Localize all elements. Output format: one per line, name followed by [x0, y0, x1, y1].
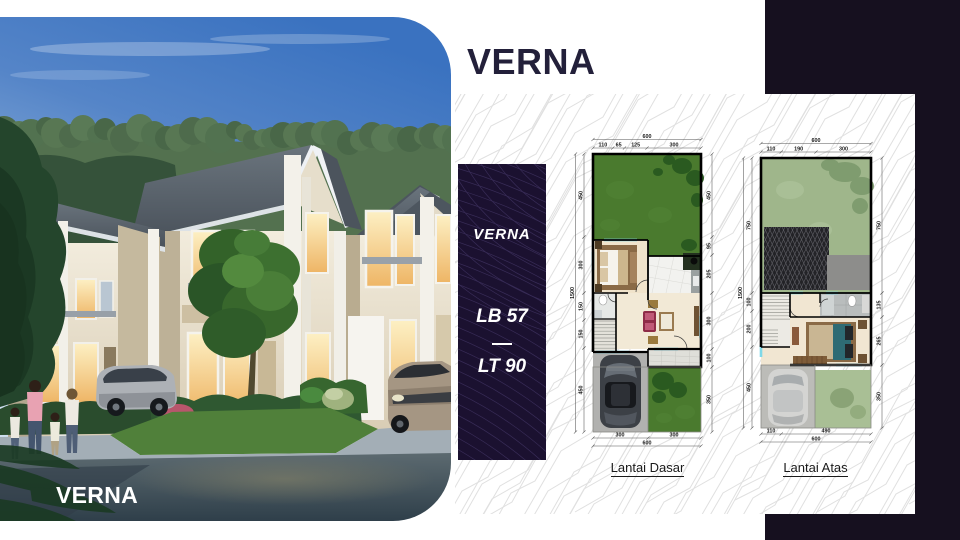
svg-text:450: 450 [579, 191, 585, 200]
svg-text:600: 600 [812, 437, 821, 443]
svg-text:265: 265 [877, 337, 883, 346]
svg-text:110: 110 [767, 429, 776, 435]
svg-text:450: 450 [747, 383, 753, 392]
svg-text:300: 300 [579, 261, 585, 270]
svg-text:150: 150 [579, 330, 585, 339]
svg-text:65: 65 [616, 143, 622, 149]
svg-text:600: 600 [643, 134, 652, 140]
svg-text:110: 110 [599, 143, 608, 149]
svg-text:300: 300 [670, 433, 679, 439]
svg-text:450: 450 [707, 191, 713, 200]
svg-text:135: 135 [877, 301, 883, 310]
svg-text:205: 205 [707, 270, 713, 279]
svg-text:450: 450 [579, 386, 585, 395]
svg-text:600: 600 [812, 138, 821, 144]
svg-text:600: 600 [643, 441, 652, 447]
svg-text:VERNA: VERNA [56, 482, 138, 508]
svg-text:200: 200 [747, 325, 753, 334]
svg-text:300: 300 [616, 433, 625, 439]
svg-text:490: 490 [822, 429, 831, 435]
svg-text:350: 350 [877, 392, 883, 401]
svg-text:1500: 1500 [570, 287, 576, 299]
svg-text:95: 95 [707, 243, 713, 249]
svg-text:300: 300 [670, 143, 679, 149]
svg-text:300: 300 [707, 317, 713, 326]
svg-text:110: 110 [767, 147, 776, 153]
svg-text:750: 750 [877, 221, 883, 230]
svg-text:350: 350 [707, 395, 713, 404]
svg-text:190: 190 [794, 147, 803, 153]
svg-text:125: 125 [631, 143, 640, 149]
svg-text:1500: 1500 [738, 287, 744, 299]
svg-text:300: 300 [839, 147, 848, 153]
svg-text:750: 750 [747, 221, 753, 230]
svg-text:100: 100 [707, 354, 713, 363]
svg-text:150: 150 [579, 302, 585, 311]
svg-text:100: 100 [747, 298, 753, 307]
